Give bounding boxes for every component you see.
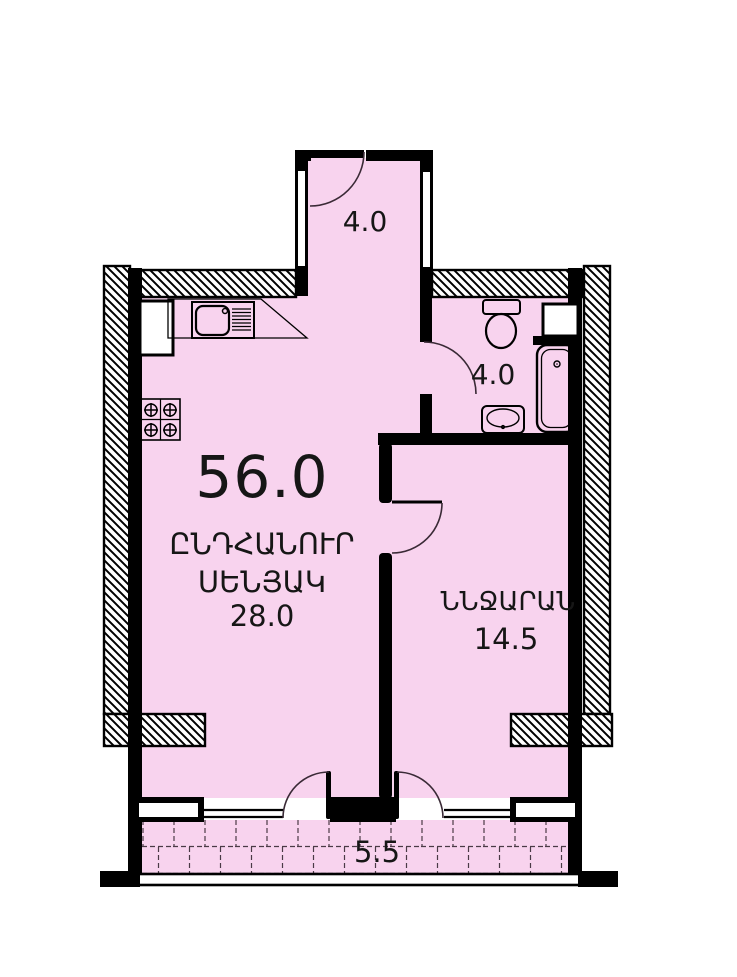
bedroom-area-label: 14.5 xyxy=(474,622,539,656)
total-area-label: 56.0 xyxy=(195,443,328,511)
hall-wall-right-core xyxy=(423,172,430,267)
floor-areas xyxy=(140,158,568,874)
bathroom-shaft xyxy=(543,304,578,336)
exterior-wall-left xyxy=(104,266,130,714)
hall-area-label: 4.0 xyxy=(343,205,388,238)
balcony-area-label: 5.5 xyxy=(354,835,400,869)
balcony-pier-center xyxy=(330,797,396,822)
hall-wall-left-core xyxy=(298,171,305,266)
top-wall-right xyxy=(432,270,582,297)
bathroom-area-label: 4.0 xyxy=(471,358,516,391)
bearing-wall-left xyxy=(128,268,142,874)
partition-wall-b xyxy=(379,553,392,799)
living-room-name-line2: ՍԵՆՅԱԿ xyxy=(198,565,326,599)
glazing-right xyxy=(444,810,512,817)
glazing-left xyxy=(204,810,283,817)
floor-plan-page: 4.0 4.0 56.0 ԸՆԴՀԱՆՈՒՐ ՍԵՆՅԱԿ 28.0 ՆՆՋԱՐ… xyxy=(0,0,737,977)
living-room-area-label: 28.0 xyxy=(230,599,295,633)
bath-wall-b xyxy=(420,394,432,434)
window-left-glass xyxy=(139,803,198,817)
railing-band xyxy=(106,874,612,885)
top-wall-left xyxy=(130,270,296,297)
balcony-door-right-leaf xyxy=(394,771,399,819)
kitchen-sink-drainboard xyxy=(232,309,251,330)
balcony-railing xyxy=(100,871,618,887)
railing-end-right xyxy=(578,871,618,887)
bath-wall-a xyxy=(420,296,432,342)
balcony-door-left-leaf xyxy=(326,771,331,819)
partition-wall-a xyxy=(379,443,392,503)
bedroom-wall-top xyxy=(378,433,580,445)
pier-right xyxy=(511,714,612,746)
railing-end-left xyxy=(100,871,140,887)
living-room-name-line1: ԸՆԴՀԱՆՈՒՐ xyxy=(169,527,354,561)
hall-wall-top-b xyxy=(366,150,433,161)
exterior-wall-right xyxy=(584,266,610,714)
bathtub-drain-dot xyxy=(556,363,558,365)
floor-plan: 4.0 4.0 56.0 ԸՆԴՀԱՆՈՒՐ ՍԵՆՅԱԿ 28.0 ՆՆՋԱՐ… xyxy=(0,0,737,977)
entrance-door-leaf xyxy=(309,150,364,158)
hall-wall-top-a xyxy=(295,150,311,161)
bedroom-name-label: ՆՆՋԱՐԱՆ xyxy=(441,587,576,617)
window-right-glass xyxy=(516,803,575,817)
pier-left xyxy=(104,714,205,746)
